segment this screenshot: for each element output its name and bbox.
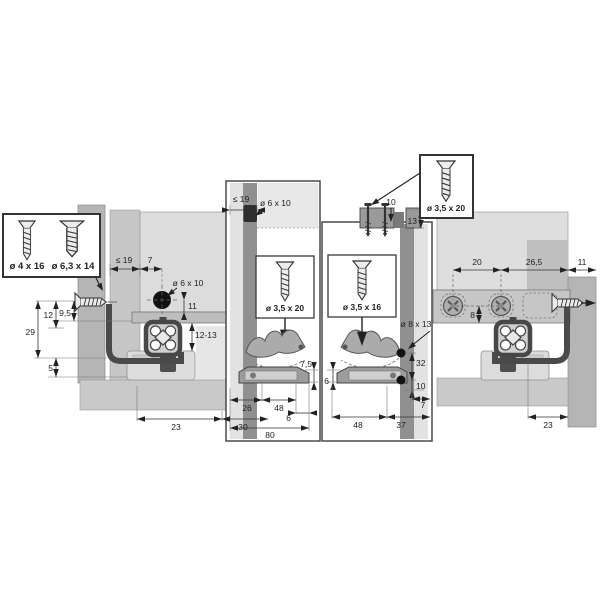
dowel-hole-icon [397,349,406,358]
dim-9-5: 9,5 [59,308,71,318]
dim-5: 5 [48,363,53,373]
hole-label: ø 8 x 13 [401,319,432,329]
drill-hole-icon [244,205,258,222]
screw-size-label: ø 3,5 x 20 [427,203,466,213]
dim-26: 26 [242,403,252,413]
dim-range: 12-13 [195,330,217,340]
dim-48: 48 [353,420,363,430]
dim-32: 32 [416,358,426,368]
dim-11: 11 [578,257,587,267]
screw-size-label: ø 4 x 16 [10,261,45,272]
dim-10: 10 [416,381,426,391]
top-bracket [360,208,394,228]
dim-panel-max: ≤ 19 [116,255,133,265]
dim-80: 80 [265,430,275,440]
drawer-side-edge [400,224,414,439]
dim-37: 37 [396,420,406,430]
drawer-bottom-band [80,380,226,410]
dim-10-top: 10 [386,197,396,207]
dim-20: 20 [472,257,482,267]
dim-6: 6 [324,376,329,386]
front-view-right: 10 13 ø 3,5 x 16 ø 8 x 13 32 10 6 48 37 … [322,197,432,441]
top-bracket-spacer [394,212,404,228]
screw-size-label: ø 3,5 x 20 [266,303,305,313]
mounting-plate [132,312,226,323]
screw-size-label: ø 3,5 x 16 [343,302,382,312]
dim-26-5: 26,5 [526,257,543,267]
installation-diagram: ≤ 19 7 ø 6 x 10 11 12-13 9,5 12 29 5 ≤ 1… [0,0,600,600]
dim-hole-depth: 11 [188,301,197,311]
dim-48: 48 [274,403,284,413]
dowel-hole-icon [397,376,406,385]
hole-label: ø 6 x 10 [173,278,204,288]
dim-offset: 7 [148,255,153,265]
dim-6: 6 [286,413,291,423]
diagram-canvas: ≤ 19 7 ø 6 x 10 11 12-13 9,5 12 29 5 ≤ 1… [0,0,600,600]
dim-7-5: 7,5 [300,359,312,369]
dim-29: 29 [26,327,36,337]
dim-30: 30 [238,422,248,432]
dim-8: 8 [470,310,475,320]
dim-13: 13 [408,216,418,226]
screw-size-label: ø 6,3 x 14 [52,261,95,272]
drawer-bottom-band [437,378,568,406]
dim-23: 23 [543,420,553,430]
hole-label: ø 6 x 10 [260,198,291,208]
dim-7: 7 [421,400,426,410]
front-view-left: ≤ 19 ø 6 x 10 ø 3,5 x 20 7,5 26 48 6 80 [222,181,320,441]
dim-panel-max: ≤ 19 [233,194,250,204]
dim-12: 12 [44,310,54,320]
dim-23: 23 [171,422,181,432]
